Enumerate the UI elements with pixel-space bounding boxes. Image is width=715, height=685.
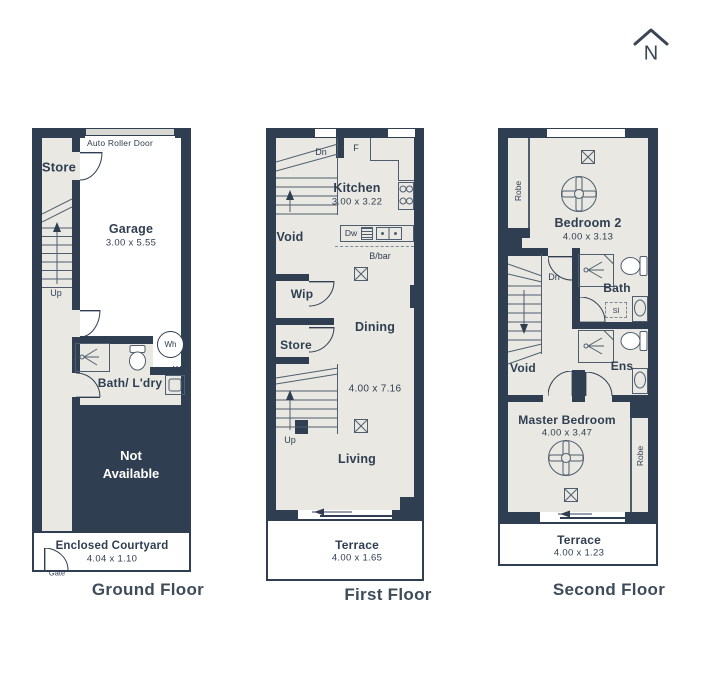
gate-label: Gate — [49, 569, 65, 578]
toilet-icon — [620, 255, 648, 277]
wall — [276, 357, 309, 364]
terrace-label-second: Terrace — [557, 533, 601, 547]
store-label-first: Store — [280, 338, 312, 352]
skylight-label: Sl — [613, 306, 620, 315]
window — [315, 128, 336, 138]
wall — [572, 322, 658, 329]
store-label: Store — [42, 160, 76, 175]
skylight-box: Sl — [605, 302, 627, 318]
wall — [612, 395, 658, 402]
bath-door-second — [580, 297, 606, 323]
second-floor-title: Second Floor — [553, 580, 665, 600]
counter-line — [370, 160, 398, 161]
bedroom2-label: Bedroom 2 — [554, 216, 621, 230]
ground-floor-title: Ground Floor — [92, 580, 204, 600]
breakfast-bar-line — [335, 246, 414, 247]
window — [547, 128, 625, 138]
wall — [72, 138, 80, 152]
courtyard-label: Enclosed Courtyard — [56, 540, 169, 552]
w-label: W — [173, 364, 181, 374]
dw-label: Dw — [345, 228, 357, 238]
fridge-label: F — [353, 143, 359, 153]
robe-right-label: Robe — [635, 446, 645, 466]
toilet-icon — [127, 345, 148, 371]
dining-label: Dining — [355, 320, 395, 334]
up-label: Up — [50, 288, 62, 298]
terrace-dims-second: 4.00 x 1.23 — [554, 548, 604, 559]
wall — [414, 128, 424, 520]
robe-divider-line — [630, 418, 632, 512]
bedroom2-dims: 4.00 x 3.13 — [563, 232, 613, 243]
bath-ldry-label: Bath/ L'dry — [98, 376, 162, 390]
wip-label: Wip — [291, 287, 314, 301]
dishwasher-icon — [361, 227, 373, 240]
living-label: Living — [338, 452, 376, 466]
robe-divider-line — [528, 138, 530, 231]
master-label: Master Bedroom — [518, 413, 616, 427]
wall — [336, 128, 388, 138]
wall — [630, 402, 658, 418]
window — [388, 128, 415, 138]
wall — [32, 128, 85, 138]
stairs-first-up — [276, 364, 338, 434]
wall — [498, 512, 540, 522]
bbar-label: B/bar — [369, 251, 391, 261]
wall — [72, 180, 80, 310]
ens-door — [585, 372, 613, 397]
first-floor-title: First Floor — [344, 585, 431, 605]
wall — [508, 395, 543, 402]
terrace-dims-first: 4.00 x 1.65 — [332, 553, 382, 564]
sink-icon — [376, 227, 402, 240]
stairs-first-down — [276, 138, 338, 215]
counter-line — [398, 180, 414, 181]
wall — [625, 512, 658, 522]
shower-icon — [75, 343, 110, 372]
wall — [498, 128, 547, 138]
garage-dims: 3.00 x 5.55 — [106, 238, 156, 249]
wall — [32, 128, 42, 531]
void-label: Void — [277, 230, 304, 244]
open-plan-dims: 4.00 x 7.16 — [349, 384, 402, 395]
toilet-icon — [620, 330, 648, 352]
master-door — [548, 371, 573, 396]
not-available-label: Not Available — [91, 447, 171, 483]
store-door-first — [309, 327, 335, 353]
ceiling-symbol-icon — [564, 488, 578, 502]
ceiling-symbol-icon — [354, 267, 368, 281]
wall — [276, 318, 334, 325]
wall — [266, 128, 315, 138]
counter-line — [370, 138, 371, 160]
up-label-first: Up — [284, 435, 296, 445]
sliding-door-arrow-icon — [550, 508, 596, 520]
floorplan-sheet: N — [0, 0, 715, 685]
robe-left-label: Robe — [513, 181, 523, 201]
water-heater-icon: Wh — [157, 331, 184, 358]
courtyard-dims: 4.04 x 1.10 — [87, 554, 137, 565]
wall — [276, 274, 309, 281]
store-door — [80, 152, 103, 181]
sliding-door-arrow-icon — [302, 506, 356, 518]
garage-hall-door — [80, 310, 101, 338]
wall — [266, 128, 276, 520]
wall — [410, 285, 424, 308]
stairs-second — [508, 254, 542, 372]
shower-icon — [578, 330, 614, 363]
cooktop-icon — [398, 182, 414, 210]
ceiling-fan-icon — [560, 175, 598, 213]
kitchen-dims: 3.00 x 3.22 — [332, 197, 382, 208]
wall — [498, 128, 508, 522]
kitchen-label: Kitchen — [333, 181, 380, 195]
ens-label: Ens — [611, 359, 634, 373]
terrace-label-first: Terrace — [335, 538, 379, 552]
basin-icon — [632, 296, 648, 322]
wall — [150, 367, 191, 375]
dn-label: Dn — [315, 147, 327, 157]
stairs-ground — [42, 194, 72, 290]
wh-label: Wh — [165, 340, 177, 349]
garage-label: Garage — [109, 222, 153, 236]
ceiling-fan-icon — [547, 439, 585, 477]
auto-roller-door-label: Auto Roller Door — [87, 138, 153, 148]
counter-line — [398, 160, 399, 180]
dn-label-second: Dn — [548, 272, 560, 282]
wall — [400, 497, 424, 520]
north-label: N — [644, 43, 658, 66]
bath-label-second: Bath — [603, 281, 630, 295]
wall — [72, 397, 80, 405]
ceiling-symbol-icon — [581, 150, 595, 164]
washing-machine-icon — [165, 375, 185, 395]
wall — [572, 370, 585, 402]
ceiling-symbol-icon — [354, 419, 368, 433]
master-dims: 4.00 x 3.47 — [542, 428, 592, 439]
void-label-second: Void — [510, 361, 536, 375]
roller-door — [85, 128, 175, 136]
basin-icon — [632, 368, 648, 394]
